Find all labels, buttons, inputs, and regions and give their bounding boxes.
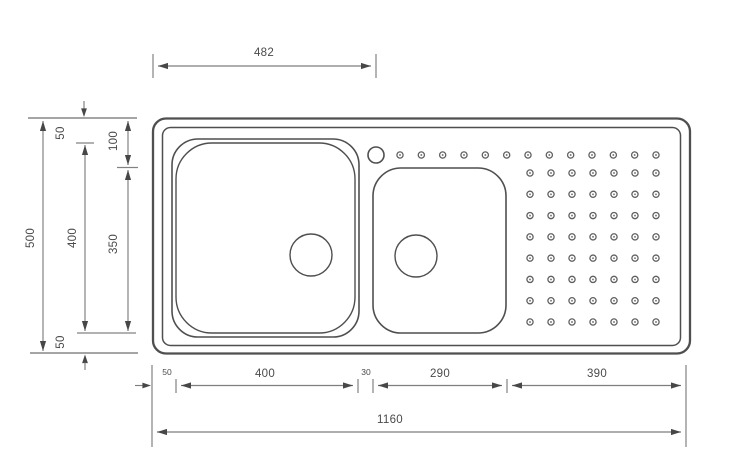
drainer-dot-center [571,193,573,195]
drainer-dot-center [529,300,531,302]
drainer-dot-center [613,215,615,217]
outside-arrow-up [82,355,88,364]
drainer-dot-center [592,193,594,195]
drainer-dot-center [550,236,552,238]
bowl1-drain-hole [290,234,332,276]
drainer-dot-center [634,215,636,217]
drainer-dot-center [571,278,573,280]
drainer-dot-center [655,236,657,238]
left-dimensions: 500 50 400 100 350 50 [25,101,138,370]
drainer-dot-center [550,278,552,280]
drainer-dot-center [571,300,573,302]
drainer-dot-center [570,154,572,156]
drainer-dot-center [592,321,594,323]
drainer-dot-center [655,154,657,156]
drainer-dot-center [655,300,657,302]
drainer-dot-center [550,300,552,302]
outside-arrow-down [81,108,87,117]
drainer-dot-center [591,154,593,156]
dim-label-bottom-margin: 50 [55,335,67,348]
sink-plan-view [153,119,690,354]
drainer-dot-center [634,193,636,195]
drainer-dot-center [550,193,552,195]
drainer-dot-center [529,321,531,323]
drainer-dot-center [550,257,552,259]
drainer-dot-center [592,278,594,280]
drainer-dot-center [634,278,636,280]
drainer-dot-center [592,300,594,302]
drainer-dot-center [529,257,531,259]
dim-label-bowl1-depth: 400 [67,228,79,248]
drainer-dot-center [442,154,444,156]
drainer-dot-center [634,321,636,323]
drainer-dot-center [655,193,657,195]
drainer-dot-center [420,154,422,156]
drainer-dot-center [655,278,657,280]
outside-arrow-right [142,383,151,389]
drainer-dot-center [612,154,614,156]
drainer-dot-center [529,236,531,238]
drainer-dot-center [550,215,552,217]
dim-label-bowl2-width: 290 [430,368,450,380]
drainer-dot-center [613,300,615,302]
drainer-dot-center [571,236,573,238]
dim-label-overall-depth: 500 [25,228,37,248]
faucet-hole [368,147,384,163]
sink-dimension-drawing: 482 500 50 400 100 350 50 [0,0,736,464]
bowl2-outline [373,168,506,333]
drainer-dot-center [399,154,401,156]
drainer-dot-center [634,236,636,238]
drainer-dot-center [592,257,594,259]
dim-label-top-margin: 50 [55,126,67,139]
drainer-dot-center [655,321,657,323]
drainer-dot-center [613,193,615,195]
drainer-dot-center [548,154,550,156]
drainer-dot-center [529,215,531,217]
drainer-dot-center [529,172,531,174]
dim-label-drainer-width: 390 [587,368,607,380]
drainer-dot-center [550,321,552,323]
drainer-dot-center [613,172,615,174]
dim-label-overall-width: 1160 [377,414,403,426]
drainer-dot-center [613,257,615,259]
drainer-dots [397,152,659,325]
drainer-dot-center [571,257,573,259]
drainer-dot-center [613,278,615,280]
dim-label-left-margin: 50 [162,367,172,377]
drainer-dot-center [571,172,573,174]
drawing-canvas: 482 500 50 400 100 350 50 [0,0,736,464]
bowl2-drain-hole [395,235,437,277]
drainer-dot-center [550,172,552,174]
drainer-dot-center [592,236,594,238]
dim-label-bowl2-depth: 350 [108,234,120,254]
drainer-dot-center [463,154,465,156]
sink-rim-line [163,128,681,346]
drainer-dot-center [655,172,657,174]
dim-label-bowl-gap: 30 [361,367,371,377]
drainer-dot-center [506,154,508,156]
bottom-dimensions: 50 400 30 290 390 1160 [135,365,686,447]
drainer-dot-center [634,257,636,259]
drainer-dot-center [634,300,636,302]
drainer-dot-center [571,215,573,217]
bowl1-outline-outer [172,139,359,337]
drainer-dot-center [655,257,657,259]
bowl1-outline-inner [176,143,355,333]
dim-label-bowl2-offset: 100 [108,131,120,151]
dim-top-width: 482 [153,47,376,78]
dim-label-top-width: 482 [254,47,274,59]
drainer-dot-center [613,236,615,238]
drainer-dot-center [634,154,636,156]
drainer-dot-center [484,154,486,156]
drainer-dot-center [613,321,615,323]
drainer-dot-center [634,172,636,174]
drainer-dot-center [592,215,594,217]
drainer-dot-center [529,278,531,280]
drainer-dot-center [655,215,657,217]
drainer-dot-center [592,172,594,174]
dim-label-bowl1-width: 400 [255,368,275,380]
drainer-dot-center [527,154,529,156]
drainer-dot-center [529,193,531,195]
drainer-dot-center [571,321,573,323]
